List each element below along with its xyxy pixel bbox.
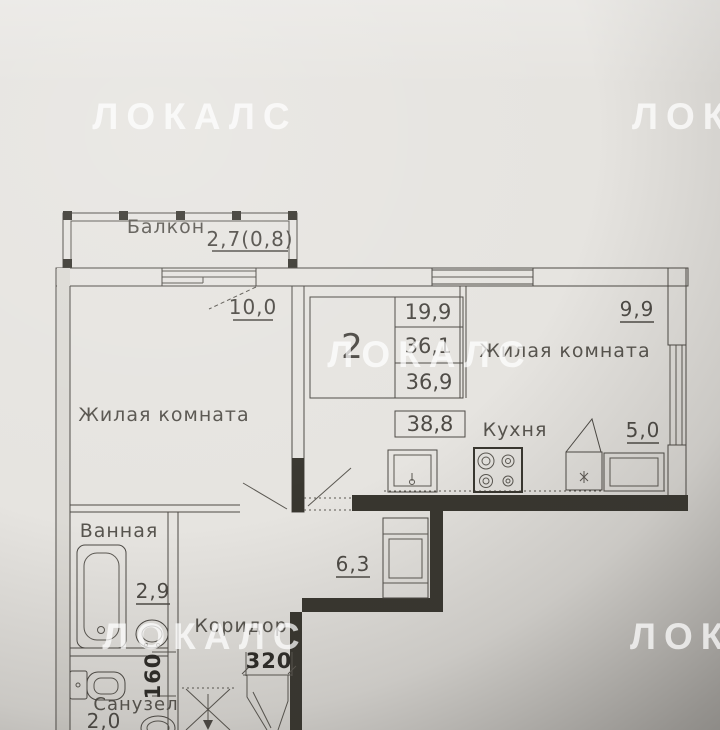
corridor-area: 6,3	[336, 552, 371, 576]
balcony-area: 2,7(0,8)	[206, 227, 293, 251]
floorplan-drawing: Балкон 2,7(0,8)	[0, 0, 720, 730]
fridge-icon	[566, 419, 602, 490]
bathtub-icon	[77, 545, 126, 648]
area-row2-value: 36,1	[405, 334, 452, 358]
dimension-320: 320	[246, 649, 293, 673]
top-wall	[56, 268, 688, 309]
living-area-value: 19,9	[405, 300, 452, 324]
partition-living-left	[292, 286, 304, 512]
bathroom-label: Ванная	[80, 520, 159, 542]
kitchen-sink-icon	[388, 450, 437, 492]
floorplan-photo: Балкон 2,7(0,8)	[0, 0, 720, 730]
wardrobe-icon	[383, 518, 428, 598]
kitchen-area: 5,0	[626, 418, 661, 442]
living-left-bottom-wall	[70, 483, 287, 512]
wc-area: 2,0	[87, 709, 122, 730]
area-row3-value: 36,9	[406, 370, 453, 394]
living-left-label: Жилая комната	[78, 404, 249, 426]
wc-sink-icon	[141, 716, 175, 730]
right-wall	[668, 268, 686, 505]
rooms-count: 2	[341, 327, 363, 367]
total-area-value: 38,8	[407, 412, 454, 436]
kitchen-label: Кухня	[483, 419, 548, 441]
dimension-160: 160	[141, 653, 165, 700]
bathroom-area: 2,9	[136, 579, 171, 603]
balcony-label: Балкон	[127, 216, 205, 238]
living-right-label: Жилая комната	[479, 340, 650, 362]
living-right-area: 9,9	[620, 297, 655, 321]
bathroom-sink-icon	[136, 620, 168, 648]
living-left-area: 10,0	[229, 295, 278, 319]
stove-icon	[474, 448, 522, 492]
kitchen-bottom-wall	[352, 491, 688, 511]
left-wall	[56, 268, 70, 730]
entry-door-mark	[182, 688, 234, 730]
washer-icon	[604, 453, 664, 491]
middle-door-opening	[304, 468, 352, 510]
entry-vestibule	[243, 675, 292, 730]
corridor-label: Коридор	[194, 615, 287, 637]
